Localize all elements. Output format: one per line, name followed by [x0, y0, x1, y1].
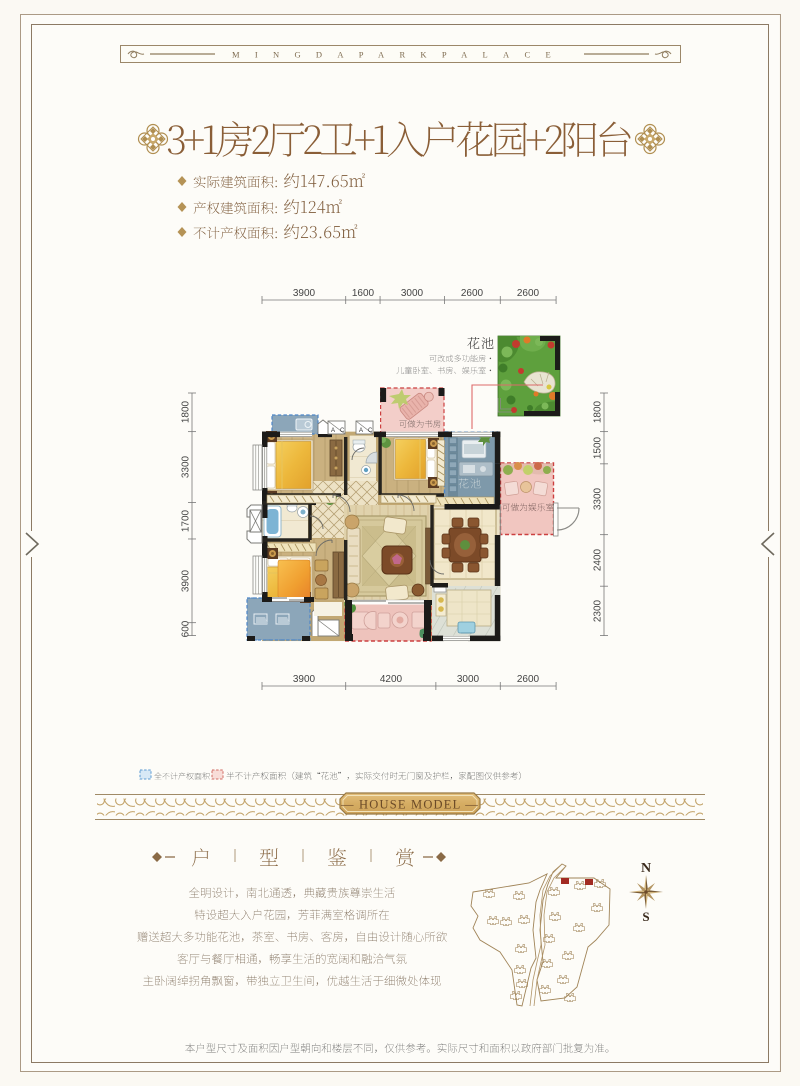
svg-text:2300: 2300	[593, 599, 604, 622]
svg-text:3300: 3300	[593, 487, 604, 510]
svg-text:2600: 2600	[517, 288, 540, 299]
svg-text:A: A	[359, 428, 363, 434]
svg-text:600: 600	[181, 620, 192, 637]
svg-text:1800: 1800	[181, 400, 192, 423]
svg-text:2600: 2600	[517, 674, 540, 685]
svg-text:1600: 1600	[352, 288, 375, 299]
svg-text:3300: 3300	[181, 455, 192, 478]
svg-text:3900: 3900	[293, 674, 316, 685]
svg-text:N: N	[641, 861, 651, 876]
svg-text:2400: 2400	[593, 548, 604, 571]
svg-text:4200: 4200	[380, 674, 403, 685]
svg-text:A: A	[331, 428, 335, 434]
svg-text:3000: 3000	[401, 288, 424, 299]
svg-text:— HOUSE MODEL —: — HOUSE MODEL —	[340, 798, 479, 812]
svg-text:MINGDAPARKPALACE: MINGDAPARKPALACE	[232, 50, 566, 60]
svg-text:2600: 2600	[461, 288, 484, 299]
svg-text:3900: 3900	[181, 569, 192, 592]
svg-text:C: C	[340, 428, 345, 434]
svg-text:S: S	[642, 909, 649, 924]
svg-text:1500: 1500	[593, 436, 604, 459]
svg-text:C: C	[368, 428, 373, 434]
svg-text:3000: 3000	[457, 674, 480, 685]
svg-text:1700: 1700	[181, 509, 192, 532]
svg-text:3900: 3900	[293, 288, 316, 299]
svg-text:1800: 1800	[593, 400, 604, 423]
